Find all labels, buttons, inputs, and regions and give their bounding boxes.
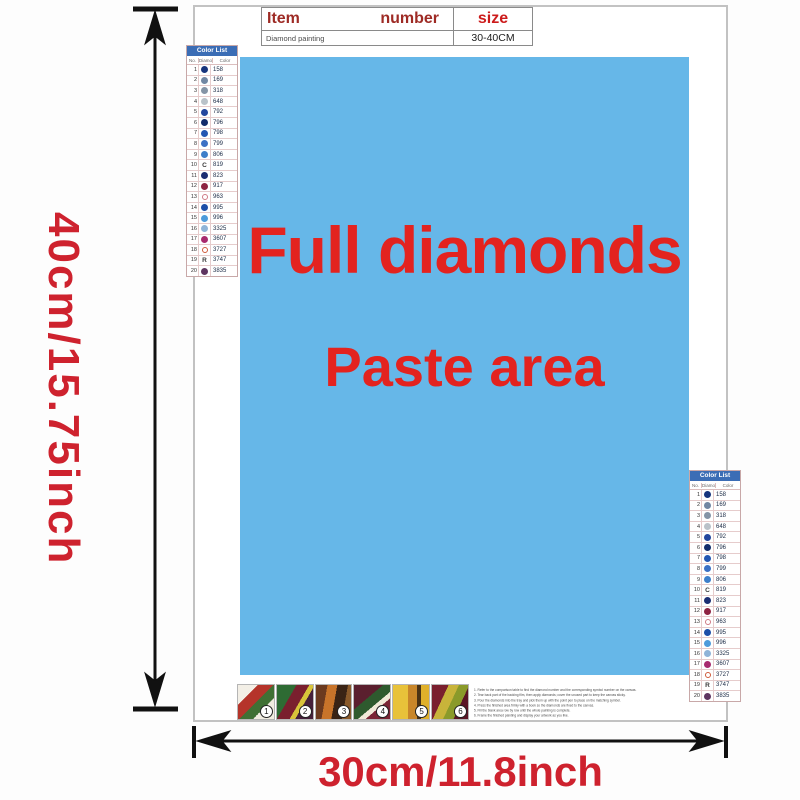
color-list-row: 203835	[690, 691, 740, 701]
height-dimension-label: 40cm/15.75inch	[38, 212, 88, 565]
color-list-row: 12917	[187, 182, 237, 193]
color-list-title: Color List	[690, 471, 740, 481]
step-thumbnail-2: 2	[276, 684, 314, 720]
color-list-row: 11823	[187, 171, 237, 182]
color-code: 3607	[211, 236, 237, 242]
diamond-symbol-icon	[198, 107, 211, 117]
diamond-symbol-dot	[704, 576, 711, 583]
step-number-badge: 3	[337, 705, 350, 718]
diamond-symbol-icon	[701, 490, 714, 500]
diamond-symbol-dot	[704, 512, 711, 519]
color-list-row: 173607	[187, 235, 237, 246]
item-name-cell: Diamond painting	[262, 31, 453, 45]
color-code: 995	[211, 205, 237, 211]
color-row-number: 13	[187, 194, 198, 200]
color-row-number: 6	[187, 120, 198, 126]
diamond-symbol-letter: R	[202, 257, 207, 264]
color-code: 796	[714, 545, 740, 551]
color-list-row: 163325	[187, 224, 237, 235]
diamond-symbol-icon	[701, 501, 714, 511]
color-code: 318	[714, 513, 740, 519]
diamond-symbol-letter: C	[705, 587, 710, 594]
color-list-row: 9806	[187, 150, 237, 161]
color-row-number: 18	[187, 247, 198, 253]
color-list-row: 173607	[690, 660, 740, 671]
diamond-symbol-icon	[198, 86, 211, 96]
color-row-number: 1	[690, 492, 701, 498]
step-thumbnail-4: 4	[353, 684, 391, 720]
step-thumbnail-5: 5	[392, 684, 430, 720]
diamond-symbol-icon	[701, 617, 714, 627]
diamond-symbol-icon	[198, 266, 211, 276]
column-header-diamond: Diamond	[198, 58, 213, 63]
item-number-header-cell: Item number	[262, 10, 453, 28]
color-list-row: 14995	[690, 628, 740, 639]
color-row-number: 2	[690, 502, 701, 508]
color-row-number: 15	[187, 215, 198, 221]
color-list-row: 6796	[187, 118, 237, 129]
color-list-right: Color List No. Diamond Color 11582169331…	[689, 470, 741, 702]
diamond-symbol-dot	[201, 130, 208, 137]
step-number-badge: 1	[260, 705, 273, 718]
diamond-symbol-dot	[201, 66, 208, 73]
color-list-left: Color List No. Diamond Color 11582169331…	[186, 45, 238, 277]
color-code: 806	[714, 577, 740, 583]
color-row-number: 20	[690, 693, 701, 699]
diamond-symbol-icon	[701, 638, 714, 648]
color-code: 798	[714, 555, 740, 561]
step-thumbnail-3: 3	[315, 684, 353, 720]
color-list-row: 19R3747	[690, 681, 740, 692]
color-code: 792	[211, 109, 237, 115]
diamond-symbol-icon	[701, 554, 714, 564]
diamond-symbol-dot	[704, 629, 711, 636]
color-list-row: 163325	[690, 649, 740, 660]
diamond-symbol-icon	[701, 691, 714, 701]
color-row-number: 8	[690, 566, 701, 572]
diamond-symbol-icon	[701, 511, 714, 521]
instruction-line: 2. Tear back part of the backing film, t…	[474, 693, 694, 698]
diamond-symbol-icon	[198, 139, 211, 149]
diamond-symbol-icon	[198, 213, 211, 223]
color-code: 819	[714, 587, 740, 593]
color-code: 158	[714, 492, 740, 498]
color-list-rows: 11582169331846485792679677988799980610C8…	[690, 490, 740, 701]
diamond-symbol-icon	[701, 532, 714, 542]
diamond-symbol-dot	[201, 109, 208, 116]
diamond-symbol-icon	[701, 607, 714, 617]
color-row-number: 20	[187, 268, 198, 274]
color-row-number: 14	[187, 205, 198, 211]
color-code: 3727	[211, 247, 237, 253]
diamond-symbol-icon	[198, 203, 211, 213]
diamond-symbol-icon	[701, 522, 714, 532]
column-header-color: Color	[716, 483, 740, 488]
step-number-badge: 4	[376, 705, 389, 718]
item-size-table: Item number size Diamond painting 30-40C…	[261, 7, 533, 46]
color-list-row: 7798	[690, 554, 740, 565]
diamond-symbol-icon	[198, 97, 211, 107]
diamond-symbol-icon	[198, 150, 211, 160]
color-list-row: 13963	[187, 192, 237, 203]
color-list-rows: 11582169331846485792679677988799980610C8…	[187, 65, 237, 276]
color-code: 917	[714, 608, 740, 614]
diamond-symbol-dot	[201, 98, 208, 105]
step-number-badge: 5	[415, 705, 428, 718]
color-row-number: 19	[187, 257, 198, 263]
color-row-number: 2	[187, 77, 198, 83]
color-code: 318	[211, 88, 237, 94]
instruction-line: 4. Press the finished area firmly with a…	[474, 703, 694, 708]
step-thumbnail-6: 6	[431, 684, 469, 720]
diamond-symbol-letter: R	[705, 682, 710, 689]
color-list-row: 10C819	[187, 160, 237, 171]
steps-strip: 123456	[237, 684, 469, 720]
color-code: 799	[211, 141, 237, 147]
diamond-symbol-dot	[201, 140, 208, 147]
color-list-row: 183727	[690, 670, 740, 681]
color-code: 3835	[714, 693, 740, 699]
color-row-number: 3	[690, 513, 701, 519]
color-code: 963	[714, 619, 740, 625]
color-list-column-headers: No. Diamond Color	[690, 481, 740, 490]
diamond-symbol-icon	[198, 182, 211, 192]
diamond-symbol-dot	[201, 77, 208, 84]
diamond-symbol-dot	[201, 204, 208, 211]
instruction-line: 5. Fill the blank area row by row until …	[474, 709, 694, 714]
color-row-number: 5	[690, 534, 701, 540]
column-header-color: Color	[213, 58, 237, 63]
color-code: 819	[211, 162, 237, 168]
diamond-symbol-icon	[701, 596, 714, 606]
diamond-symbol-dot	[704, 544, 711, 551]
color-list-column-headers: No. Diamond Color	[187, 56, 237, 65]
diamond-symbol-icon	[701, 660, 714, 670]
diamond-symbol-dot	[201, 183, 208, 190]
color-list-row: 5792	[187, 107, 237, 118]
color-code: 158	[211, 67, 237, 73]
color-code: 995	[714, 630, 740, 636]
instruction-line: 6. Frame the finished painting and displ…	[474, 714, 694, 719]
color-list-row: 5792	[690, 532, 740, 543]
diamond-symbol-dot	[201, 268, 208, 275]
instruction-line: 1. Refer to the comparison table to find…	[474, 688, 694, 693]
color-row-number: 5	[187, 109, 198, 115]
color-code: 796	[211, 120, 237, 126]
diamond-symbol-icon	[701, 670, 714, 680]
diamond-symbol-dot	[201, 215, 208, 222]
color-code: 798	[211, 130, 237, 136]
color-row-number: 9	[187, 152, 198, 158]
color-list-row: 15996	[187, 213, 237, 224]
color-list-row: 6796	[690, 543, 740, 554]
item-size-table-row: Diamond painting 30-40CM	[262, 31, 532, 45]
color-list-row: 3318	[187, 86, 237, 97]
color-row-number: 18	[690, 672, 701, 678]
product-size-diagram: 40cm/15.75inch 30cm/11.8inch Item number…	[0, 0, 800, 800]
diamond-symbol-ring	[705, 672, 711, 678]
diamond-symbol-icon	[198, 65, 211, 75]
color-code: 3727	[714, 672, 740, 678]
color-row-number: 14	[690, 630, 701, 636]
diamond-symbol-dot	[704, 661, 711, 668]
diamond-symbol-dot	[201, 119, 208, 126]
color-code: 3325	[211, 226, 237, 232]
color-list-row: 203835	[187, 266, 237, 276]
color-row-number: 19	[690, 682, 701, 688]
item-header-label: Item	[267, 10, 300, 28]
color-code: 823	[211, 173, 237, 179]
color-list-row: 19R3747	[187, 256, 237, 267]
color-row-number: 4	[187, 99, 198, 105]
color-code: 648	[714, 524, 740, 530]
diamond-symbol-ring	[202, 194, 208, 200]
color-list-row: 2169	[690, 501, 740, 512]
color-list-row: 10C819	[690, 585, 740, 596]
diamond-symbol-icon	[701, 628, 714, 638]
size-header-cell: size	[453, 8, 532, 30]
diamond-symbol-icon	[198, 245, 211, 255]
diamond-symbol-dot	[704, 640, 711, 647]
color-list-row: 15996	[690, 638, 740, 649]
diamond-symbol-icon	[198, 224, 211, 234]
diamond-symbol-icon	[198, 76, 211, 86]
color-code: 3747	[211, 257, 237, 263]
diamond-symbol-dot	[704, 502, 711, 509]
color-row-number: 11	[690, 598, 701, 604]
color-row-number: 13	[690, 619, 701, 625]
color-row-number: 10	[187, 162, 198, 168]
color-row-number: 12	[690, 608, 701, 614]
color-code: 3325	[714, 651, 740, 657]
color-row-number: 15	[690, 640, 701, 646]
color-row-number: 16	[187, 226, 198, 232]
color-row-number: 6	[690, 545, 701, 551]
item-size-cell: 30-40CM	[453, 31, 532, 45]
color-list-row: 2169	[187, 76, 237, 87]
diamond-symbol-icon	[701, 649, 714, 659]
color-code: 3835	[211, 268, 237, 274]
diamond-symbol-icon	[198, 192, 211, 202]
color-list-title: Color List	[187, 46, 237, 56]
diamond-symbol-icon	[701, 575, 714, 585]
diamond-symbol-dot	[704, 693, 711, 700]
color-list-row: 4648	[187, 97, 237, 108]
number-header-label: number	[380, 10, 439, 28]
color-row-number: 11	[187, 173, 198, 179]
color-list-row: 12917	[690, 607, 740, 618]
color-list-row: 14995	[187, 203, 237, 214]
color-row-number: 1	[187, 67, 198, 73]
color-code: 3747	[714, 682, 740, 688]
color-row-number: 7	[187, 130, 198, 136]
diamond-symbol-dot	[201, 151, 208, 158]
color-code: 996	[211, 215, 237, 221]
color-row-number: 9	[690, 577, 701, 583]
color-list-row: 13963	[690, 617, 740, 628]
color-list-row: 183727	[187, 245, 237, 256]
color-row-number: 17	[187, 236, 198, 242]
diamond-symbol-dot	[704, 534, 711, 541]
diamond-symbol-dot	[201, 236, 208, 243]
item-size-table-header: Item number size	[262, 8, 532, 31]
width-dimension-label: 30cm/11.8inch	[193, 748, 728, 796]
diamond-symbol-dot	[704, 597, 711, 604]
color-list-row: 11823	[690, 596, 740, 607]
diamond-symbol-letter: C	[202, 162, 207, 169]
step-number-badge: 6	[454, 705, 467, 718]
diamond-symbol-icon	[198, 171, 211, 181]
color-code: 792	[714, 534, 740, 540]
instructions-text: 1. Refer to the comparison table to find…	[474, 688, 694, 719]
color-row-number: 16	[690, 651, 701, 657]
diamond-symbol-icon: R	[198, 256, 211, 266]
diamond-symbol-dot	[704, 608, 711, 615]
color-list-row: 4648	[690, 522, 740, 533]
diamond-symbol-dot	[201, 87, 208, 94]
diamond-symbol-dot	[201, 225, 208, 232]
color-list-row: 8799	[187, 139, 237, 150]
diamond-symbol-dot	[704, 523, 711, 530]
color-row-number: 10	[690, 587, 701, 593]
color-code: 806	[211, 152, 237, 158]
column-header-no: No.	[187, 58, 198, 63]
diamond-symbol-dot	[704, 491, 711, 498]
diamond-symbol-ring	[202, 247, 208, 253]
diamond-symbol-icon: C	[701, 585, 714, 595]
column-header-diamond: Diamond	[701, 483, 716, 488]
diamond-symbol-dot	[704, 555, 711, 562]
color-code: 169	[714, 502, 740, 508]
diamond-symbol-dot	[201, 172, 208, 179]
paste-area-subtitle: Paste area	[324, 334, 604, 399]
color-list-row: 9806	[690, 575, 740, 586]
color-code: 917	[211, 183, 237, 189]
diamond-symbol-icon	[198, 235, 211, 245]
color-list-row: 1158	[690, 490, 740, 501]
step-thumbnail-1: 1	[237, 684, 275, 720]
paste-area-title: Full diamonds	[247, 212, 681, 288]
color-row-number: 17	[690, 661, 701, 667]
color-row-number: 12	[187, 183, 198, 189]
color-code: 648	[211, 99, 237, 105]
color-row-number: 8	[187, 141, 198, 147]
color-list-row: 3318	[690, 511, 740, 522]
color-code: 3607	[714, 661, 740, 667]
color-code: 963	[211, 194, 237, 200]
color-code: 169	[211, 77, 237, 83]
diamond-symbol-icon	[701, 543, 714, 553]
color-code: 823	[714, 598, 740, 604]
diamond-symbol-ring	[705, 619, 711, 625]
diamond-symbol-icon: C	[198, 160, 211, 170]
color-list-row: 1158	[187, 65, 237, 76]
diamond-symbol-dot	[704, 650, 711, 657]
instruction-line: 3. Pour the diamonds into the tray and p…	[474, 698, 694, 703]
height-arrow-icon	[133, 9, 178, 709]
color-code: 996	[714, 640, 740, 646]
color-row-number: 4	[690, 524, 701, 530]
color-row-number: 7	[690, 555, 701, 561]
color-list-row: 8799	[690, 564, 740, 575]
column-header-no: No.	[690, 483, 701, 488]
color-code: 799	[714, 566, 740, 572]
paste-area: Full diamonds Paste area	[240, 57, 689, 675]
color-list-row: 7798	[187, 129, 237, 140]
diamond-symbol-icon	[198, 118, 211, 128]
canvas-sheet: Item number size Diamond painting 30-40C…	[193, 5, 728, 722]
diamond-symbol-icon: R	[701, 681, 714, 691]
step-number-badge: 2	[299, 705, 312, 718]
color-row-number: 3	[187, 88, 198, 94]
diamond-symbol-dot	[704, 565, 711, 572]
diamond-symbol-icon	[198, 129, 211, 139]
diamond-symbol-icon	[701, 564, 714, 574]
